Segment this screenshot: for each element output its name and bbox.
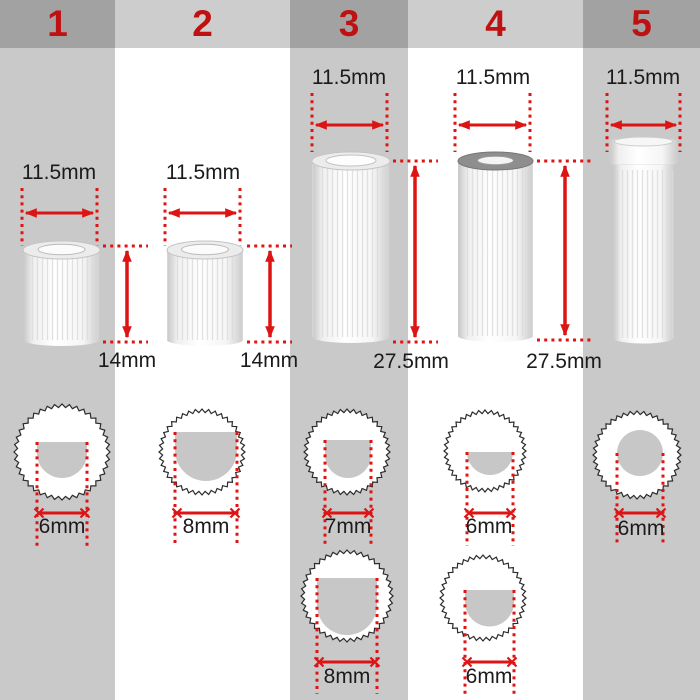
col1-top-diameter-label: 11.5mm: [22, 161, 96, 185]
col2-width-dimension: [165, 188, 240, 246]
col1-width-dimension: [22, 188, 97, 246]
col2-height-label: 14mm: [240, 349, 298, 373]
col2-height-dimension: [247, 246, 292, 342]
col4-height-dimension: [537, 161, 591, 340]
col3-inner-diameter-label-1: 7mm: [325, 515, 372, 539]
col2-top-diameter-label: 11.5mm: [166, 161, 240, 185]
col1-bottom-view: [14, 404, 110, 500]
col3-height-label: 27.5mm: [373, 350, 449, 374]
col4-cap-side-photo: [458, 152, 533, 342]
col4-inner-diameter-label-2: 6mm: [466, 665, 513, 689]
col3-bottom-view-1: [304, 409, 390, 495]
col2-inner-diameter-label: 8mm: [183, 515, 230, 539]
col3-top-diameter-label: 11.5mm: [312, 66, 386, 90]
col1-height-dimension: [103, 246, 148, 342]
col5-cap-side-photo: [610, 137, 677, 344]
col5-inner-diameter-label: 6mm: [618, 517, 665, 541]
cap-size-guide-diagram: 1 2 3 4 5: [0, 0, 700, 700]
col1-height-label: 14mm: [98, 349, 156, 373]
col2-bottom-view: [159, 409, 245, 495]
col2-cap-side-photo: [167, 241, 243, 346]
col1-cap-side-photo: [23, 241, 100, 346]
col4-height-label: 27.5mm: [526, 350, 602, 374]
col4-width-dimension: [455, 93, 530, 152]
col5-top-diameter-label: 11.5mm: [606, 66, 680, 90]
col3-width-dimension: [312, 93, 387, 152]
col4-top-diameter-label: 11.5mm: [456, 66, 530, 90]
col3-cap-side-photo: [312, 152, 390, 343]
col3-bottom-view-2: [301, 550, 393, 642]
col3-height-dimension: [393, 161, 438, 342]
col5-bottom-view: [593, 411, 681, 499]
col4-inner-diameter-label-1: 6mm: [466, 515, 513, 539]
col3-inner-diameter-label-2: 8mm: [324, 665, 371, 689]
col4-bottom-view-1: [444, 410, 526, 492]
col1-inner-diameter-label: 6mm: [39, 515, 86, 539]
